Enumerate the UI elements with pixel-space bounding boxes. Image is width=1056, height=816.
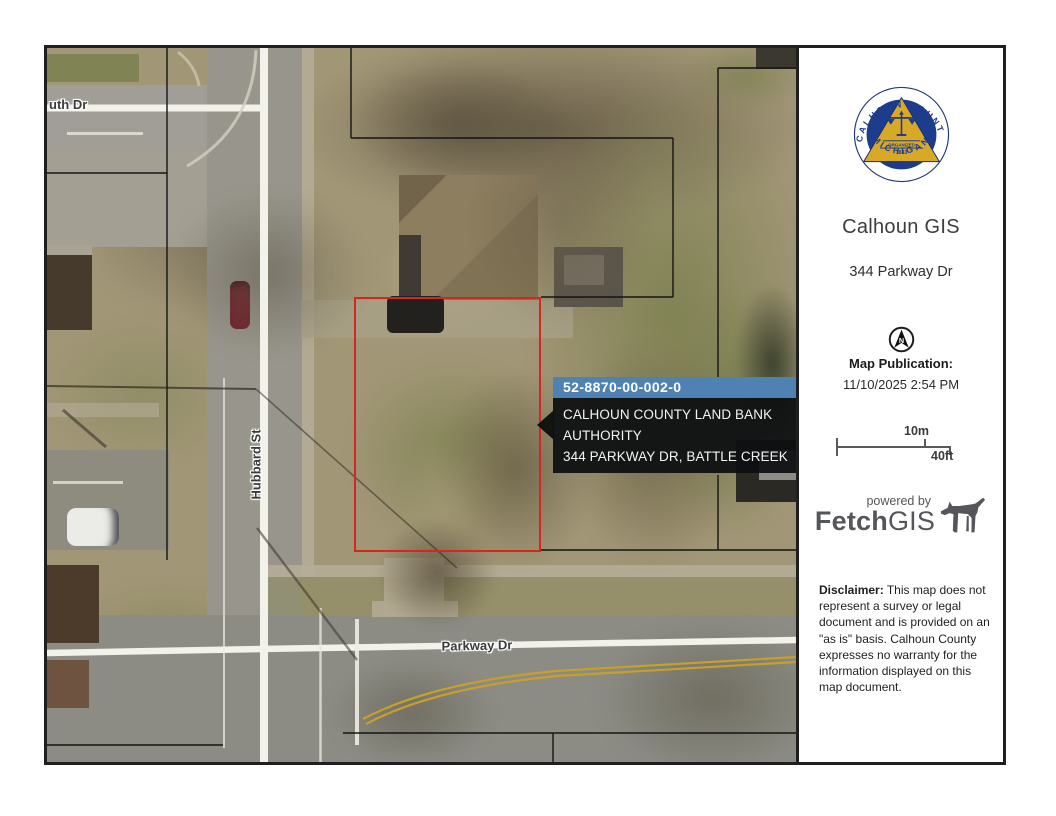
- county-seal: ORGANIZED 1833 CALHOUN COUNTY MICHIGAN: [853, 86, 950, 183]
- popup-pointer: [537, 410, 554, 440]
- publication-datetime: 11/10/2025 2:54 PM: [843, 377, 959, 392]
- aerial-map[interactable]: uth Dr Hubbard St Parkway Dr 52-8870-00-…: [47, 48, 796, 762]
- publication-label: Map Publication:: [849, 356, 953, 371]
- scale-tick-metric: [924, 439, 926, 448]
- tree-shadow: [167, 188, 367, 358]
- popup-parcel-id: 52-8870-00-002-0: [553, 377, 796, 398]
- scale-bar-line: [836, 446, 951, 448]
- brand-name: FetchGIS: [815, 508, 935, 534]
- street-label-south-dr: uth Dr: [49, 97, 87, 112]
- tree-canopy: [327, 658, 497, 762]
- info-panel: ORGANIZED 1833 CALHOUN COUNTY MICHIGAN C…: [799, 48, 1003, 762]
- app-title: Calhoun GIS: [842, 216, 960, 239]
- disclaimer-label: Disclaimer:: [819, 583, 884, 597]
- map-publication-frame: uth Dr Hubbard St Parkway Dr 52-8870-00-…: [44, 45, 1006, 765]
- parcel-highlight[interactable]: [354, 297, 541, 552]
- north-letter: N: [898, 336, 903, 345]
- disclaimer-text: Disclaimer: This map does not represent …: [819, 582, 997, 695]
- popup-address: 344 PARKWAY DR, BATTLE CREEK: [563, 446, 796, 467]
- fetchgis-logo: powered by FetchGIS: [815, 494, 987, 538]
- dog-icon: [939, 496, 987, 538]
- scale-metric-label: 10m: [904, 424, 929, 438]
- popup-body: CALHOUN COUNTY LAND BANK AUTHORITY 344 P…: [553, 398, 796, 473]
- popup-owner: CALHOUN COUNTY LAND BANK AUTHORITY: [563, 404, 796, 446]
- parcel-popup: 52-8870-00-002-0 CALHOUN COUNTY LAND BAN…: [553, 377, 796, 473]
- street-label-hubbard-st: Hubbard St: [249, 415, 264, 515]
- subject-address: 344 Parkway Dr: [849, 264, 952, 280]
- street-label-parkway-dr: Parkway Dr: [431, 637, 523, 654]
- north-arrow-icon: N: [888, 326, 915, 353]
- tree-canopy: [597, 618, 796, 762]
- scale-imperial-label: 40ft: [931, 449, 953, 463]
- scale-bar: 10m 40ft: [836, 430, 966, 466]
- scale-tick-zero: [836, 438, 838, 456]
